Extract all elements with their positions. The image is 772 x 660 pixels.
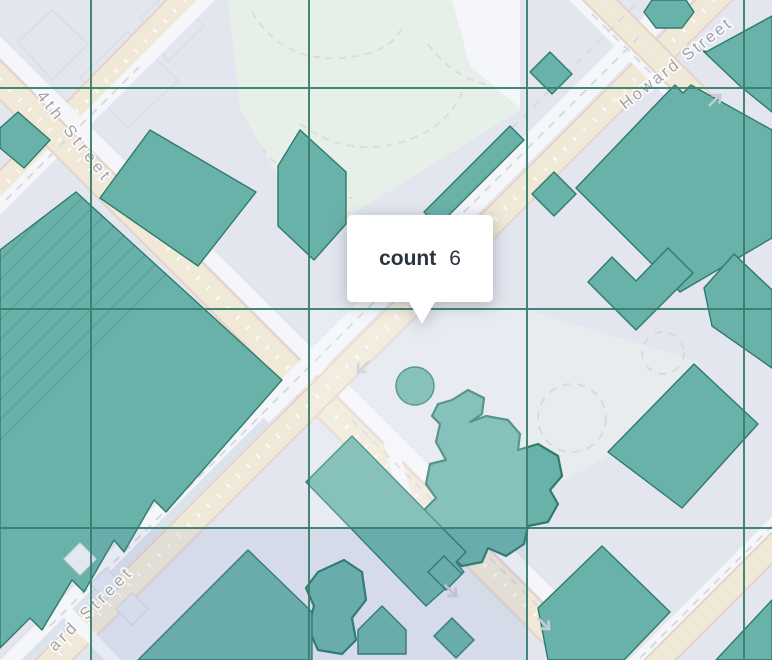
hovered-grid-cell[interactable] bbox=[309, 309, 527, 528]
grid-cell[interactable] bbox=[309, 528, 527, 660]
tooltip-field-label: count bbox=[379, 247, 436, 271]
map-canvas[interactable]: 4th Street Howard Street ard Street bbox=[0, 0, 772, 660]
tooltip-field-value: 6 bbox=[449, 247, 461, 271]
grid-cell[interactable] bbox=[91, 528, 309, 660]
tooltip-box: count 6 bbox=[347, 215, 493, 302]
map-viewport[interactable]: 4th Street Howard Street ard Street coun… bbox=[0, 0, 772, 660]
tooltip-pointer bbox=[409, 302, 435, 324]
map-tooltip: count 6 bbox=[347, 215, 493, 302]
